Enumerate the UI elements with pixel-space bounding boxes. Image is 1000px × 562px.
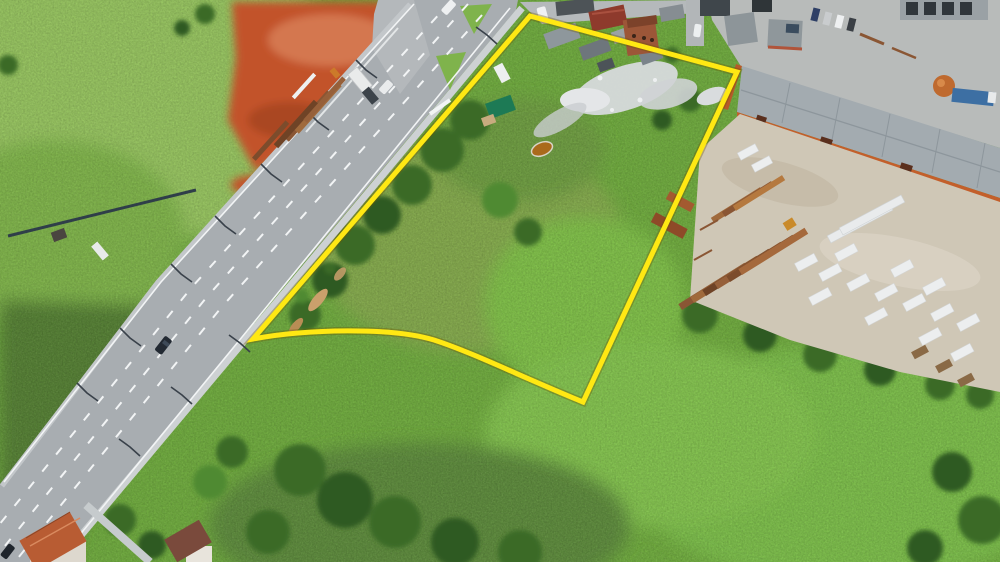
- dark-roof: [752, 0, 772, 12]
- aerial-photo-stage: Aerial drone photograph of a vacant land…: [0, 0, 1000, 562]
- silo-highlight: [937, 79, 945, 87]
- shed-bay: [906, 2, 918, 15]
- silo: [933, 75, 955, 97]
- small-building: [767, 19, 802, 49]
- window: [632, 34, 636, 38]
- shed-bay: [924, 2, 936, 15]
- debris: [598, 76, 603, 81]
- solar-panel: [786, 24, 799, 34]
- shed-bay: [942, 2, 954, 15]
- debris: [638, 98, 643, 103]
- truck-cab: [987, 92, 996, 104]
- window: [642, 36, 646, 40]
- debris: [610, 108, 614, 112]
- grey-roof: [724, 12, 758, 46]
- dark-roof: [700, 0, 730, 16]
- shed-bay: [960, 2, 972, 15]
- aerial-photo: [0, 0, 1000, 562]
- debris: [653, 78, 657, 82]
- window: [650, 38, 654, 42]
- red-eave: [768, 47, 802, 49]
